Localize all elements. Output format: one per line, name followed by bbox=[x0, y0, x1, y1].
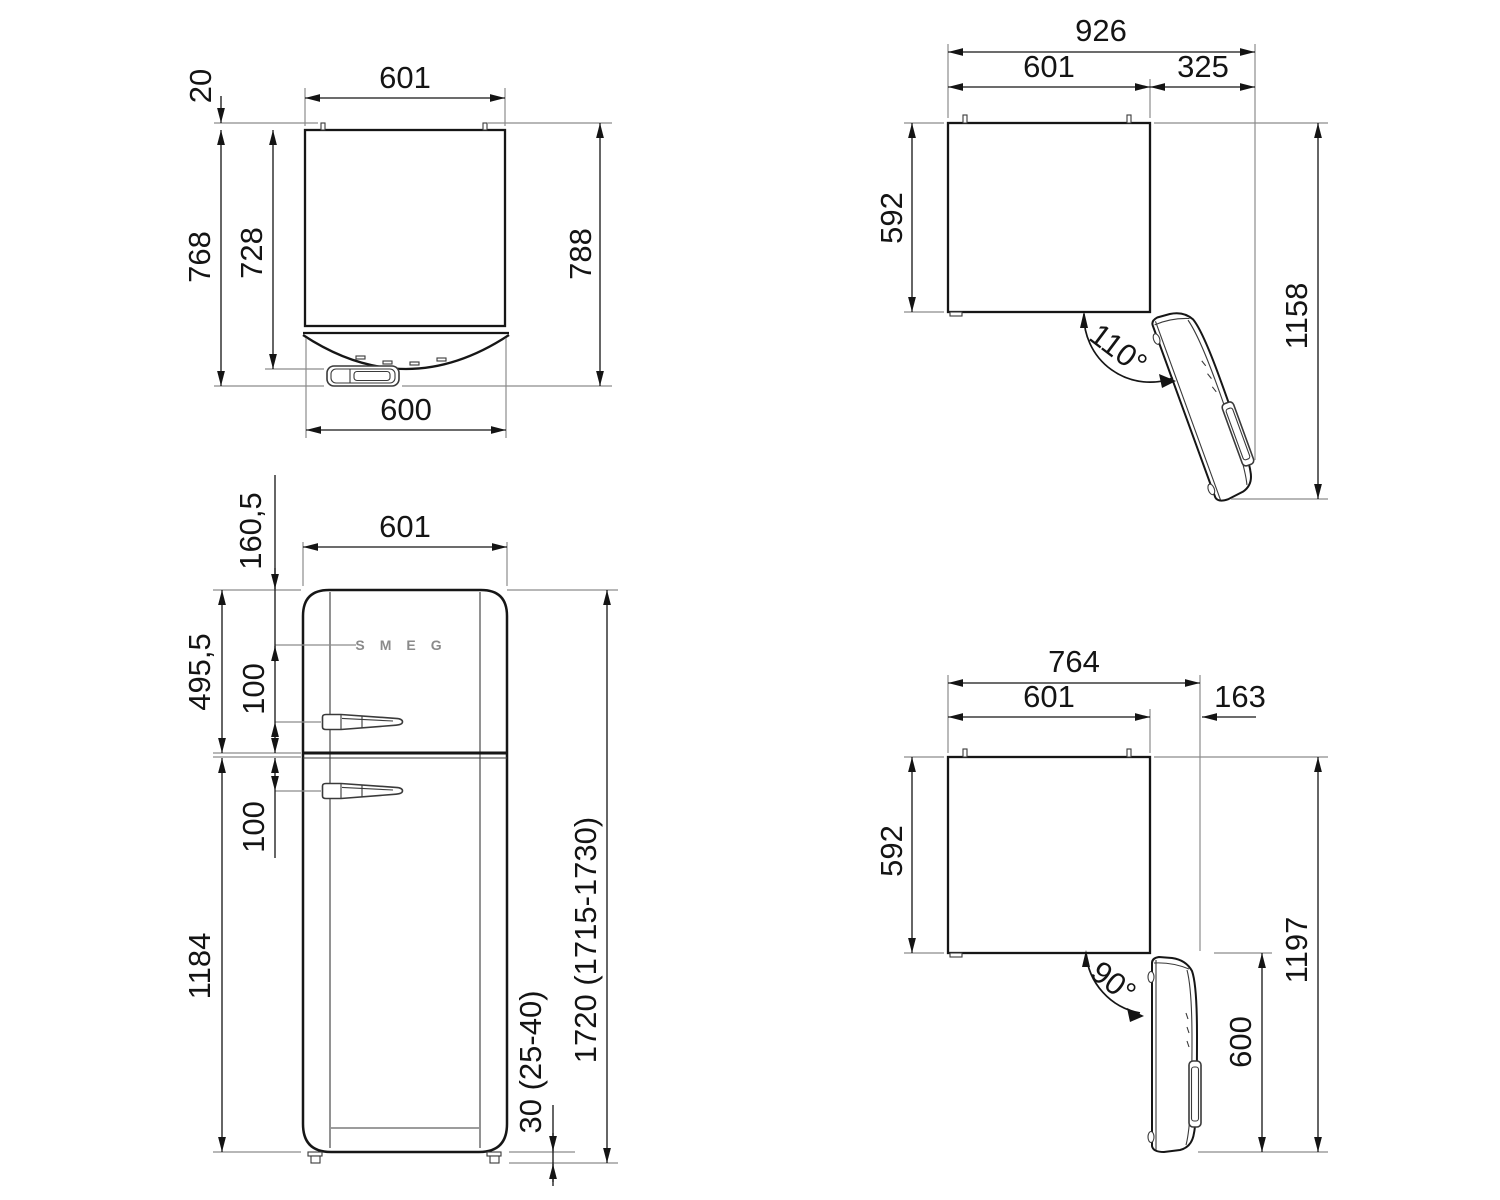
open-door-110 bbox=[1147, 303, 1263, 504]
dimension-logo-offset-160-5: 160,5 bbox=[233, 475, 275, 668]
dim-label-door-width: 600 bbox=[1223, 1016, 1258, 1068]
dimension-width-601: 601 bbox=[303, 509, 507, 586]
dim-label-door-projection: 325 bbox=[1177, 49, 1229, 84]
hinge-pin-left bbox=[963, 749, 967, 757]
dim-label-lower-door-height: 1184 bbox=[182, 933, 217, 1000]
dim-label-door-width: 600 bbox=[380, 392, 432, 427]
dim-label-door-projection: 163 bbox=[1214, 679, 1266, 714]
dim-label-total-depth: 1158 bbox=[1279, 283, 1314, 350]
view-front: SMEG 601 bbox=[182, 475, 618, 1186]
hinge-pin-right bbox=[1127, 115, 1131, 123]
view-top-closed: 601 20 768 728 788 bbox=[182, 60, 612, 438]
dim-label-depth: 592 bbox=[874, 825, 909, 877]
dim-label-depth: 592 bbox=[874, 192, 909, 244]
door-handle bbox=[1189, 1061, 1201, 1127]
dim-label-total-width: 764 bbox=[1048, 644, 1100, 679]
dim-label-width: 601 bbox=[379, 60, 431, 95]
angle-label: 90° bbox=[1084, 954, 1142, 1010]
view-top-open-110: 110° 926 601 325 592 bbox=[874, 13, 1328, 504]
dimension-door-projection-325: 325 bbox=[1150, 49, 1255, 87]
dim-label-total-width: 926 bbox=[1075, 13, 1127, 48]
dimension-drawing-sheet: 601 20 768 728 788 bbox=[0, 0, 1500, 1200]
dim-label-hinge-pin: 20 bbox=[183, 69, 218, 103]
dim-label-lower-handle-offset: 100 bbox=[236, 801, 271, 853]
dimension-width-601: 601 bbox=[305, 60, 505, 126]
dim-label-width: 601 bbox=[379, 509, 431, 544]
dim-label-depth-cabinet: 728 bbox=[234, 227, 269, 279]
dimension-depth-592: 592 bbox=[874, 123, 944, 312]
door-swing-arc-90: 90° bbox=[1082, 950, 1144, 1022]
dim-label-upper-door-height: 495,5 bbox=[182, 633, 217, 711]
dimension-door-width-600: 600 bbox=[1214, 953, 1272, 1152]
dim-label-width: 601 bbox=[1023, 679, 1075, 714]
dim-label-logo-offset: 160,5 bbox=[233, 492, 268, 570]
dim-label-upper-handle-offset: 100 bbox=[236, 663, 271, 715]
dim-label-width: 601 bbox=[1023, 49, 1075, 84]
door-front-curve bbox=[303, 335, 509, 369]
door-handle-top-view bbox=[327, 366, 399, 386]
front-outline bbox=[303, 590, 507, 1152]
hinge-pin-right bbox=[483, 123, 487, 130]
foot-mark bbox=[950, 312, 962, 316]
dimension-width-601: 601 bbox=[948, 49, 1150, 118]
dim-label-total-depth: 1197 bbox=[1279, 917, 1314, 984]
brand-logo: SMEG bbox=[355, 637, 456, 653]
hinge-pin-left bbox=[321, 123, 325, 130]
foot-mark bbox=[950, 953, 962, 957]
open-door-90 bbox=[1148, 957, 1201, 1152]
angle-label: 110° bbox=[1083, 317, 1153, 382]
feet bbox=[308, 1152, 501, 1163]
dimension-feet-30: 30 (25-40) bbox=[513, 990, 553, 1186]
refrigerator-technical-drawing: 601 20 768 728 788 bbox=[0, 0, 1500, 1200]
hinge-pin-right bbox=[1127, 749, 1131, 757]
cabinet-top-outline bbox=[305, 130, 505, 326]
dim-label-feet-height: 30 (25-40) bbox=[513, 990, 548, 1133]
dim-label-depth-total: 788 bbox=[563, 228, 598, 280]
view-top-open-90: 90° 764 601 163 592 bbox=[874, 644, 1328, 1152]
dimension-upper-handle-100: 100 bbox=[236, 663, 275, 753]
cabinet-top-outline bbox=[948, 757, 1150, 953]
dimension-lower-door-1184: 1184 bbox=[182, 758, 222, 1152]
arc-arrow-start bbox=[1080, 311, 1088, 328]
dim-label-depth-with-handle: 768 bbox=[182, 231, 217, 283]
hinge-pin-left bbox=[963, 115, 967, 123]
dimension-total-height-1720: 1720 (1715-1730) bbox=[568, 590, 607, 1163]
arc-arrow-end bbox=[1127, 1008, 1144, 1022]
dimension-lower-handle-100: 100 bbox=[236, 758, 275, 858]
dimension-upper-door-495-5: 495,5 bbox=[182, 590, 222, 753]
dim-label-total-height: 1720 (1715-1730) bbox=[568, 817, 603, 1063]
cabinet-top-outline bbox=[948, 123, 1150, 312]
dimension-door-projection-163: 163 bbox=[1202, 679, 1266, 717]
dimension-depth-592: 592 bbox=[874, 757, 944, 953]
dimension-width-601: 601 bbox=[948, 679, 1150, 753]
